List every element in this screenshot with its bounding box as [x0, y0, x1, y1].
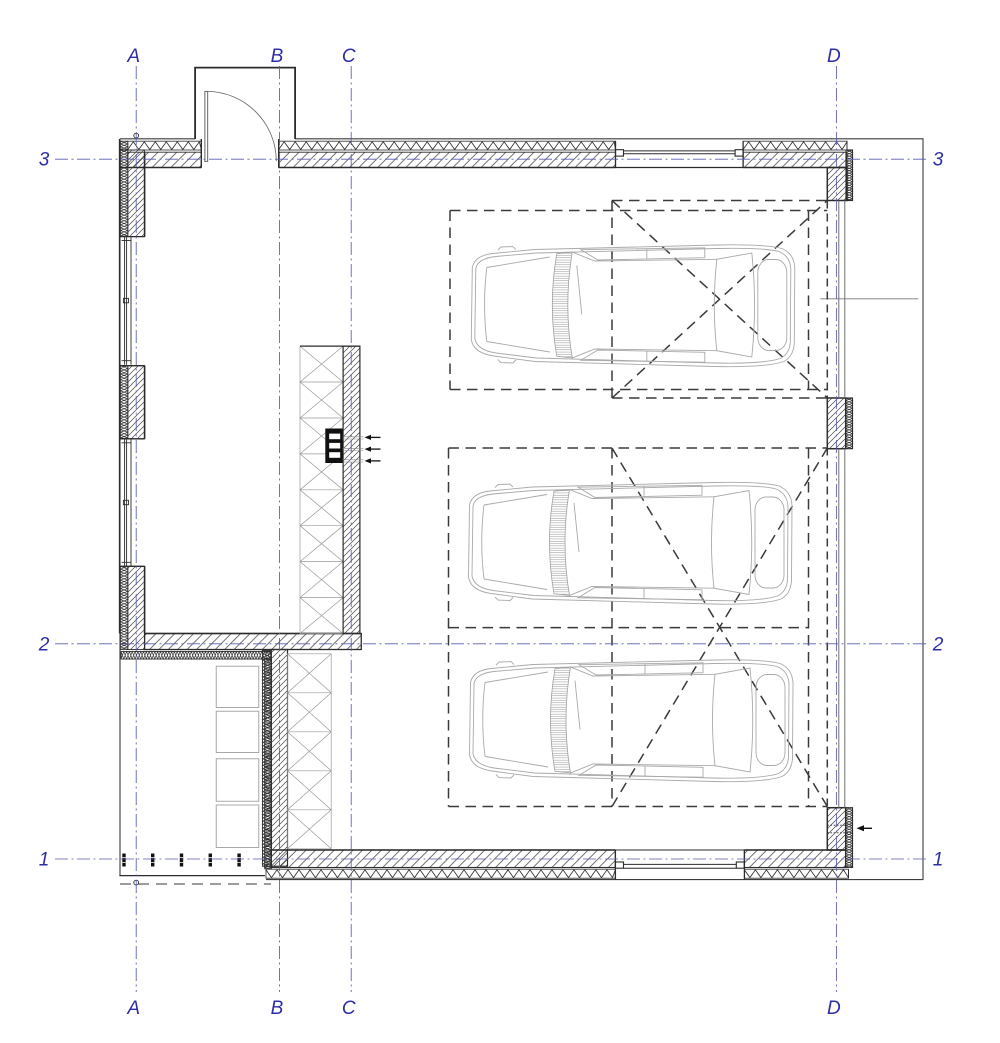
svg-text:3: 3: [933, 150, 944, 171]
svg-text:B: B: [271, 46, 284, 67]
svg-text:2: 2: [932, 634, 944, 655]
svg-text:2: 2: [38, 634, 50, 655]
svg-text:C: C: [342, 46, 356, 67]
svg-text:3: 3: [39, 150, 50, 171]
svg-text:1: 1: [39, 850, 50, 871]
svg-text:D: D: [827, 46, 841, 67]
svg-text:1: 1: [933, 850, 944, 871]
svg-text:A: A: [126, 46, 140, 67]
svg-text:D: D: [827, 998, 841, 1019]
svg-text:B: B: [271, 998, 284, 1019]
svg-text:C: C: [342, 998, 356, 1019]
svg-text:A: A: [126, 998, 140, 1019]
